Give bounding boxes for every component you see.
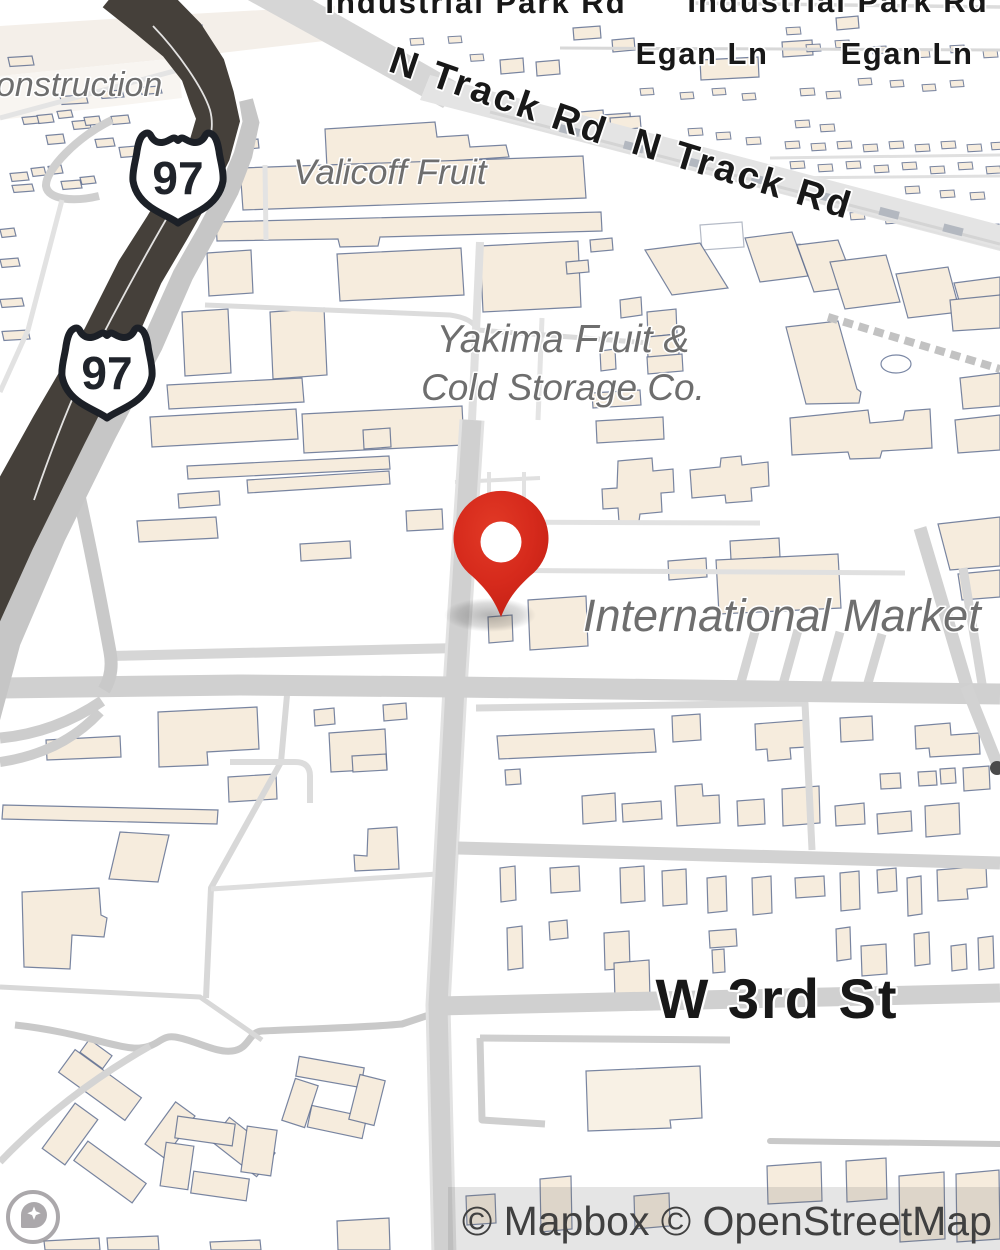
svg-text:Egan Ln: Egan Ln [636, 36, 769, 71]
svg-text:Cold Storage Co.: Cold Storage Co. [421, 367, 705, 408]
svg-text:Valicoff Fruit: Valicoff Fruit [293, 153, 487, 192]
svg-text:Industrial Park Rd: Industrial Park Rd [325, 0, 626, 20]
svg-text:W 3rd St: W 3rd St [655, 967, 898, 1030]
svg-text:Yakima Fruit &: Yakima Fruit & [437, 318, 690, 361]
svg-text:Industrial Park Rd: Industrial Park Rd [687, 0, 988, 19]
svg-text:onstruction: onstruction [0, 66, 162, 104]
svg-text:97: 97 [152, 152, 203, 204]
svg-text:97: 97 [81, 347, 132, 399]
svg-text:Egan Ln: Egan Ln [841, 36, 974, 71]
svg-text:© Mapbox © OpenStreetMap: © Mapbox © OpenStreetMap [462, 1198, 992, 1244]
svg-text:International Market: International Market [583, 590, 983, 641]
